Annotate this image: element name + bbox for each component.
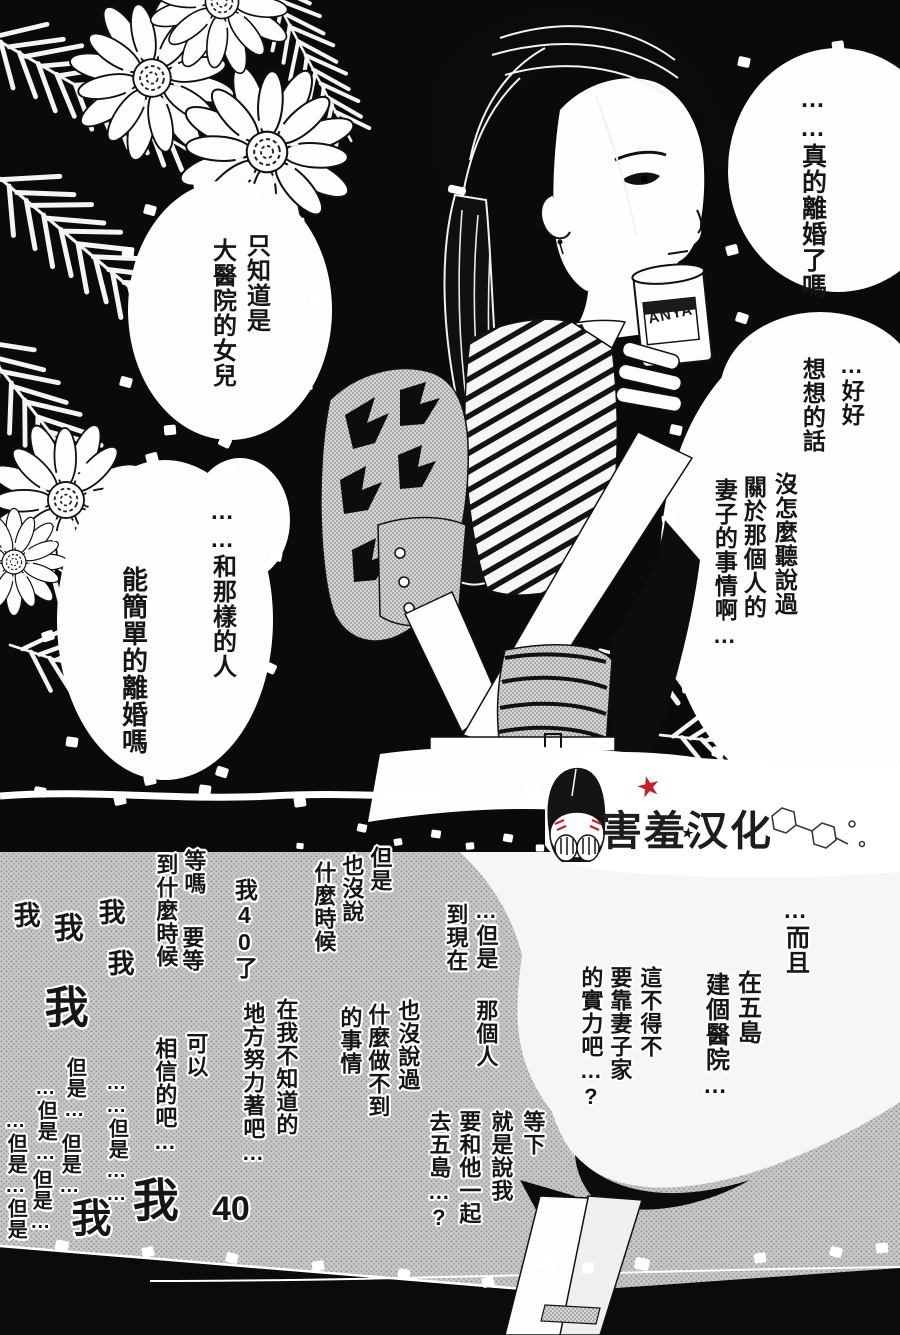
- float-text-30: 40: [212, 1190, 250, 1229]
- speech-text-divorce: ……真的離婚了嗎: [799, 85, 826, 299]
- float-text-5: 要等: [180, 926, 203, 972]
- speech-text-person-2: 能簡單的離婚嗎: [119, 566, 147, 755]
- float-text-27: …但是…但是: [4, 1110, 25, 1240]
- float-text-37: 等下: [521, 1110, 544, 1156]
- float-text-18: 在我不知道的: [274, 998, 297, 1136]
- float-text-28: 我: [128, 1176, 177, 1223]
- waist: [498, 645, 612, 748]
- float-text-4: 等嗎: [182, 849, 205, 895]
- float-text-32: 在五島: [734, 970, 759, 1045]
- float-text-31: …而且: [782, 897, 807, 975]
- watermark-mascot: [548, 768, 606, 862]
- speech-text-think-2: 想想的話: [800, 357, 824, 453]
- float-text-39: 要和他一起: [457, 1110, 480, 1225]
- speech-text-hospital-1: 只知道是: [243, 233, 268, 333]
- manga-page: ……真的離婚了嗎 …好好 想想的話 沒怎麼聽說過 關於那個人的 妻子的事情啊… …: [0, 0, 900, 1335]
- float-text-6: 到什麼時候: [154, 853, 177, 968]
- speech-text-person-1: ……和那樣的人: [209, 498, 234, 679]
- float-text-14: 那個人: [474, 999, 497, 1068]
- float-text-23: 但是…: [63, 1057, 84, 1122]
- float-text-22: ……但是……: [105, 1072, 126, 1206]
- float-text-8: 我: [10, 901, 39, 929]
- float-text-2: 什麼時候: [312, 861, 335, 953]
- speech-text-think-1: …好好: [839, 352, 863, 427]
- float-text-34: 這不得不: [638, 966, 661, 1058]
- float-text-15: 也沒說過: [396, 999, 419, 1091]
- float-text-13: 到現在: [444, 903, 467, 972]
- float-text-33: 建個醫院…: [702, 972, 727, 1100]
- float-text-24: …但是…: [34, 1077, 55, 1165]
- float-text-40: 去五島…?: [427, 1110, 450, 1231]
- float-text-26: 但是…: [29, 1169, 50, 1234]
- float-text-10: 我: [104, 949, 133, 977]
- float-text-36: 的實力吧…?: [579, 966, 602, 1110]
- float-text-11: 我: [38, 984, 85, 1029]
- float-text-17: 的事情: [338, 1006, 361, 1075]
- float-text-21: 相信的吧…: [153, 1037, 176, 1155]
- float-text-12: …但是: [474, 898, 497, 970]
- earring: [558, 240, 563, 245]
- float-text-38: 就是說我: [489, 1110, 512, 1202]
- sock-band: [541, 1305, 600, 1324]
- speech-text-hospital-2: 大醫院的女兒: [209, 238, 234, 388]
- speech-text-wife-1: 沒怎麼聽說過: [772, 472, 796, 616]
- float-text-35: 要靠妻子家: [608, 966, 631, 1081]
- float-text-3: 我40了: [232, 878, 256, 980]
- float-text-9: 我: [49, 912, 81, 943]
- float-text-29: 我: [66, 1197, 108, 1238]
- speech-text-wife-2: 關於那個人的: [741, 475, 765, 619]
- float-text-16: 什麼做不到: [366, 1003, 389, 1118]
- float-text-7: 我: [95, 898, 124, 926]
- speech-text-wife-3: 妻子的事情啊…: [712, 478, 736, 649]
- float-text-19: 地方努力著吧…: [241, 1002, 264, 1166]
- float-text-25: 但是…: [58, 1133, 79, 1198]
- float-text-0: 但是: [368, 846, 391, 892]
- float-text-1: 也沒說: [340, 854, 363, 923]
- float-text-20: 可以: [184, 1032, 207, 1078]
